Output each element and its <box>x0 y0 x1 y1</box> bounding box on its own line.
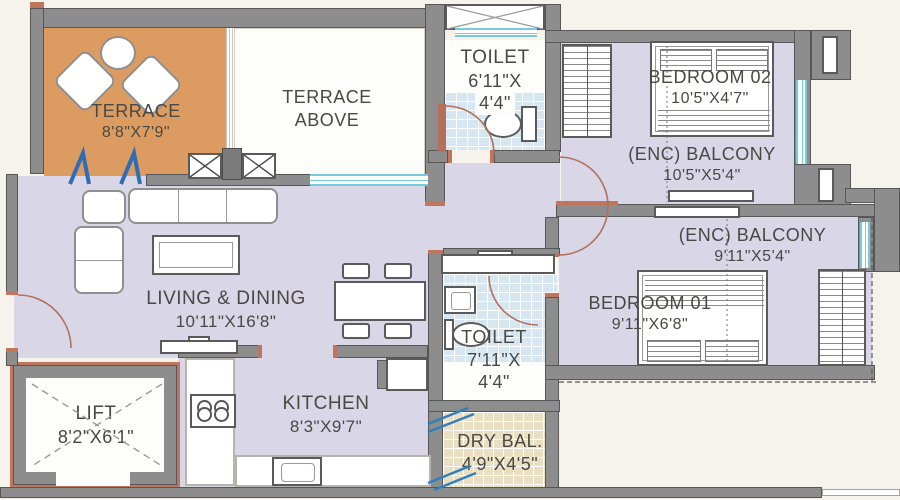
room-dims: 8'3"X9'7" <box>240 416 412 437</box>
kitchen-label: KITCHEN 8'3"X9'7" <box>240 392 412 437</box>
wall <box>333 345 428 358</box>
room-dims: 10'5"X5'4" <box>592 166 812 186</box>
pillow <box>647 340 701 362</box>
sink-icon <box>272 457 322 486</box>
stove-icon <box>190 394 236 428</box>
sliding-door-panel <box>668 190 754 202</box>
room-dims: 4'4" <box>447 371 541 394</box>
dining-table <box>334 281 426 321</box>
room-name: (ENC) BALCONY <box>592 143 812 166</box>
room-name: BEDROOM 01 <box>545 292 755 315</box>
door-jamb <box>6 291 18 295</box>
wall <box>6 174 18 295</box>
room-dims: 6'11"X <box>447 70 543 93</box>
dining-chair <box>342 323 370 339</box>
wall <box>845 188 877 203</box>
balcony-lower-label: (ENC) BALCONY 9'11"X5'4" <box>640 224 865 267</box>
duct-shaft <box>445 4 545 30</box>
door-leaf <box>438 104 446 152</box>
room-dims: 4'9"X4'5" <box>410 453 590 476</box>
room-name: TERRACE <box>46 100 226 123</box>
toilet-top-label: TOILET 6'11"X 4'4" <box>447 46 543 115</box>
balcony-upper-label: (ENC) BALCONY 10'5"X5'4" <box>592 143 812 186</box>
bedroom02-label: BEDROOM 02 10'5"X4'7" <box>600 66 820 109</box>
room-name: ABOVE <box>237 109 417 132</box>
fridge-space <box>386 358 428 391</box>
floor-plan: TERRACE 8'8"X7'9" TERRACE ABOVE TOILET 6… <box>0 0 900 500</box>
door-jamb <box>333 345 337 358</box>
console-shelf <box>441 254 555 274</box>
wall-post <box>222 148 242 180</box>
kitchen-counter <box>235 455 431 487</box>
room-dims: 8'2"X6'1" <box>20 426 172 449</box>
pillow <box>705 340 759 362</box>
dining-chair <box>342 263 370 279</box>
room-dims: 4'4" <box>475 92 515 115</box>
sofa-three-seater <box>128 188 278 224</box>
washbasin-icon <box>444 286 476 314</box>
room-dims: 10'11"X16'8" <box>120 311 332 332</box>
wardrobe-icon <box>818 269 866 366</box>
room-name: (ENC) BALCONY <box>640 224 865 247</box>
blanket <box>658 110 770 134</box>
bedroom01-label: BEDROOM 01 9'11"X6'8" <box>545 292 755 335</box>
room-dims: 10'5"X4'7" <box>600 89 820 109</box>
room-name: LIVING & DINING <box>120 287 332 311</box>
terrace-above-label: TERRACE ABOVE <box>237 86 417 131</box>
passage-floor <box>428 163 560 255</box>
door-leaf <box>556 201 618 205</box>
wall <box>545 365 875 380</box>
round-table <box>100 36 136 70</box>
dining-chair <box>384 263 412 279</box>
bottom-plinth <box>0 487 822 498</box>
lift-label: LIFT 8'2"X6'1" <box>20 402 172 448</box>
planter-box <box>242 153 276 179</box>
vent-shaft <box>818 168 834 202</box>
sofa-corner-seat <box>82 190 126 224</box>
wall <box>30 8 428 28</box>
window <box>455 28 537 37</box>
room-name: DRY BAL. <box>410 430 590 453</box>
lift-door-gap <box>56 468 130 486</box>
door-jamb <box>30 2 44 8</box>
room-name: LIFT <box>20 402 172 426</box>
wall <box>874 188 900 272</box>
sliding-door-panel <box>654 206 740 218</box>
sofa-two-seater <box>74 226 124 294</box>
tv-unit <box>160 340 238 354</box>
terrace-label: TERRACE 8'8"X7'9" <box>46 100 226 143</box>
door-jamb <box>425 201 445 206</box>
coffee-table <box>152 235 240 275</box>
wall <box>428 400 560 412</box>
room-name: KITCHEN <box>240 392 412 416</box>
room-name: TOILET <box>447 326 541 349</box>
bottom-plinth-end <box>822 489 900 496</box>
door-jamb <box>448 150 452 163</box>
room-dims: 7'11"X <box>447 349 541 372</box>
dining-chair <box>384 323 412 339</box>
room-name: TERRACE <box>237 86 417 109</box>
room-dims: 9'11"X5'4" <box>640 247 865 267</box>
wall <box>30 8 44 174</box>
room-dims: 9'11"X6'8" <box>545 315 755 335</box>
planter-box <box>188 153 222 179</box>
door-jamb <box>490 150 494 163</box>
dry-balcony-label: DRY BAL. 4'9"X4'5" <box>410 430 590 475</box>
room-dims: 8'8"X7'9" <box>46 123 226 143</box>
vent-shaft <box>822 36 838 74</box>
wall <box>494 150 560 163</box>
wall <box>545 4 561 152</box>
door-jamb <box>258 345 262 358</box>
living-dining-label: LIVING & DINING 10'11"X16'8" <box>120 287 332 332</box>
window <box>310 174 428 186</box>
door-jamb <box>6 348 18 352</box>
room-name: BEDROOM 02 <box>600 66 820 89</box>
toilet-bottom-label: TOILET 7'11"X 4'4" <box>447 326 541 394</box>
room-name: TOILET <box>447 46 543 70</box>
